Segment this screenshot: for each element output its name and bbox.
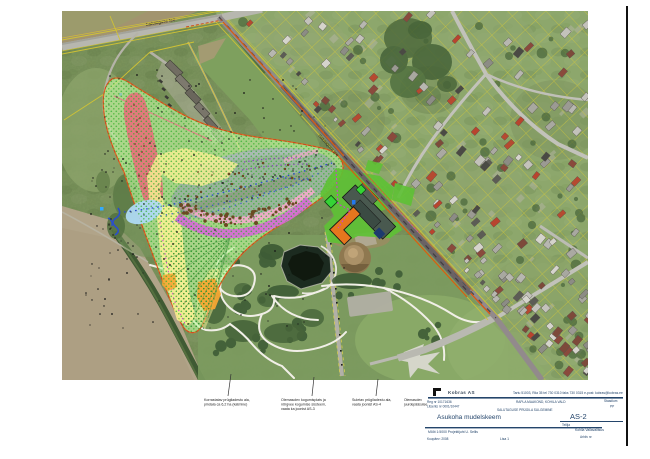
svg-text:PP: PP bbox=[610, 405, 614, 409]
svg-text:Kobras AS: Kobras AS bbox=[448, 390, 475, 395]
svg-text:SALUTAGUSE PRÜGILA SULGEMINE: SALUTAGUSE PRÜGILA SULGEMINE bbox=[497, 408, 553, 412]
svg-text:Lisa 1: Lisa 1 bbox=[500, 437, 509, 441]
svg-text:Kuupäev: 2008: Kuupäev: 2008 bbox=[427, 437, 449, 441]
svg-text:Arhiiv nr: Arhiiv nr bbox=[580, 435, 593, 439]
svg-text:Olemasolev: Olemasolev bbox=[404, 398, 422, 402]
svg-text:Tartu 51003, Riia 35 tel 73: Tartu 51003, Riia 35 tel 730 0310 faks 7… bbox=[513, 391, 623, 395]
svg-text:Staadium: Staadium bbox=[604, 399, 618, 403]
svg-text:pindala ca 6,2 ha (katmine): pindala ca 6,2 ha (katmine) bbox=[204, 403, 247, 407]
svg-text:Korrastatav prügiladestu ala,: Korrastatav prügiladestu ala, bbox=[204, 398, 250, 402]
svg-text:vaata ka joonist AS-3: vaata ka joonist AS-3 bbox=[281, 407, 315, 411]
svg-text:RAPLA MAAKOND, KOHILA VALD: RAPLA MAAKOND, KOHILA VALD bbox=[516, 400, 566, 404]
svg-text:Litsents nr 0001/10447: Litsents nr 0001/10447 bbox=[427, 405, 460, 409]
svg-text:Olemasolev kogumisplats ja: Olemasolev kogumisplats ja bbox=[281, 398, 326, 402]
svg-text:Kohila Vallavalitsus: Kohila Vallavalitsus bbox=[575, 428, 604, 432]
svg-text:Mõõt 1:5000 Projektijuht U.: Mõõt 1:5000 Projektijuht U. Sellis bbox=[428, 430, 478, 434]
svg-text:Suletav prügiladestu ala,: Suletav prügiladestu ala, bbox=[352, 398, 391, 402]
svg-text:Reg nr 10171636: Reg nr 10171636 bbox=[427, 400, 452, 404]
svg-text:vaata joonist AS-4: vaata joonist AS-4 bbox=[352, 403, 381, 407]
svg-text:AS-2: AS-2 bbox=[570, 412, 587, 421]
svg-text:Tellija: Tellija bbox=[562, 423, 570, 427]
svg-text:juurdepääsutee: juurdepääsutee bbox=[403, 403, 427, 407]
svg-text:nõrgvee kogumise süsteem,: nõrgvee kogumise süsteem, bbox=[281, 403, 326, 407]
svg-text:Asukoha mudelskeem: Asukoha mudelskeem bbox=[437, 414, 501, 421]
